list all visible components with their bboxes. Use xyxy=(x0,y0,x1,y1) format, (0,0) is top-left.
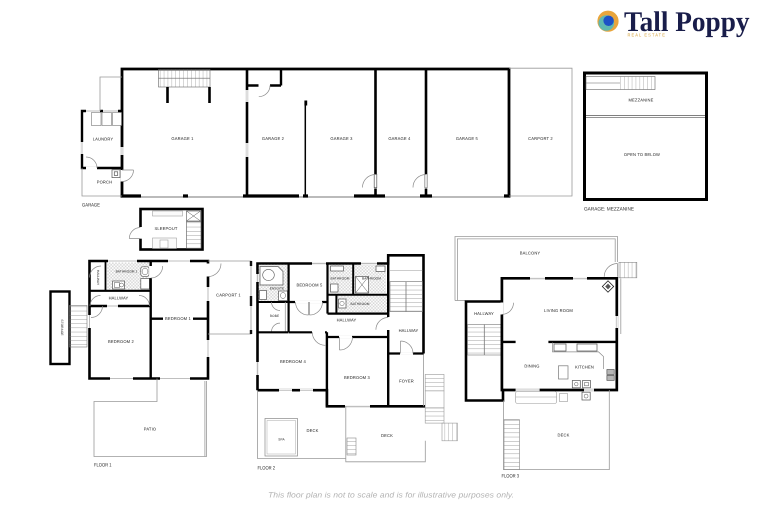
svg-text:SLEEPOUT: SLEEPOUT xyxy=(154,226,177,231)
svg-text:PORCH: PORCH xyxy=(97,179,113,184)
svg-text:BEDROOM 3: BEDROOM 3 xyxy=(344,375,370,380)
svg-text:GARAGE: GARAGE xyxy=(82,203,101,209)
svg-text:GARAGE 3: GARAGE 3 xyxy=(330,136,353,141)
svg-text:DECK: DECK xyxy=(307,428,319,433)
svg-text:ENSUITE: ENSUITE xyxy=(270,286,285,290)
svg-text:GARAGE 1: GARAGE 1 xyxy=(171,136,194,141)
svg-text:BATHROOM: BATHROOM xyxy=(351,302,370,306)
svg-text:HALLWAY: HALLWAY xyxy=(474,311,494,316)
svg-text:HALLWAY: HALLWAY xyxy=(109,295,129,300)
svg-text:STORAGE: STORAGE xyxy=(60,319,64,335)
svg-text:PATIO: PATIO xyxy=(144,427,156,432)
svg-text:GARAGE 4: GARAGE 4 xyxy=(388,136,411,141)
svg-text:GARAGE 2: GARAGE 2 xyxy=(262,136,285,141)
svg-text:HALLWAY: HALLWAY xyxy=(96,270,100,286)
svg-text:DECK: DECK xyxy=(558,433,570,438)
svg-text:DINING: DINING xyxy=(524,364,539,369)
svg-text:LIVING ROOM: LIVING ROOM xyxy=(544,308,573,313)
svg-text:CARPORT 1: CARPORT 1 xyxy=(216,293,241,298)
svg-text:FLOOR 2: FLOOR 2 xyxy=(258,466,276,472)
svg-text:BEDROOM 1: BEDROOM 1 xyxy=(165,316,191,321)
svg-text:BEDROOM 5: BEDROOM 5 xyxy=(297,283,323,288)
svg-text:BATHROOM 1: BATHROOM 1 xyxy=(116,270,138,274)
svg-text:GARAGE: MEZZANINE: GARAGE: MEZZANINE xyxy=(584,207,635,213)
svg-text:BALCONY: BALCONY xyxy=(520,251,541,256)
svg-text:FLOOR 1: FLOOR 1 xyxy=(94,463,112,469)
svg-text:LAUNDRY: LAUNDRY xyxy=(93,137,114,142)
svg-text:BEDROOM 2: BEDROOM 2 xyxy=(108,339,134,344)
svg-text:This floor plan is not to scal: This floor plan is not to scale and is f… xyxy=(268,491,514,500)
svg-text:KITCHEN: KITCHEN xyxy=(575,365,594,370)
svg-text:FOYER: FOYER xyxy=(399,379,414,384)
svg-text:CARPORT 2: CARPORT 2 xyxy=(528,136,553,141)
svg-text:HALLWAY: HALLWAY xyxy=(399,328,419,333)
svg-text:BATHROOM: BATHROOM xyxy=(362,277,381,281)
svg-text:HALLWAY: HALLWAY xyxy=(337,318,357,323)
svg-text:REAL ESTATE: REAL ESTATE xyxy=(628,33,667,38)
svg-text:BEDROOM 4: BEDROOM 4 xyxy=(280,359,306,364)
svg-text:SPA: SPA xyxy=(278,438,285,442)
svg-text:GARAGE 5: GARAGE 5 xyxy=(456,136,479,141)
svg-text:FLOOR 3: FLOOR 3 xyxy=(502,474,520,480)
svg-text:DECK: DECK xyxy=(381,433,393,438)
svg-text:MEZZANINE: MEZZANINE xyxy=(628,98,653,103)
svg-text:ROBE: ROBE xyxy=(270,314,279,318)
svg-text:BATHROOM: BATHROOM xyxy=(331,277,350,281)
svg-text:OPEN TO BELOW: OPEN TO BELOW xyxy=(624,152,660,157)
